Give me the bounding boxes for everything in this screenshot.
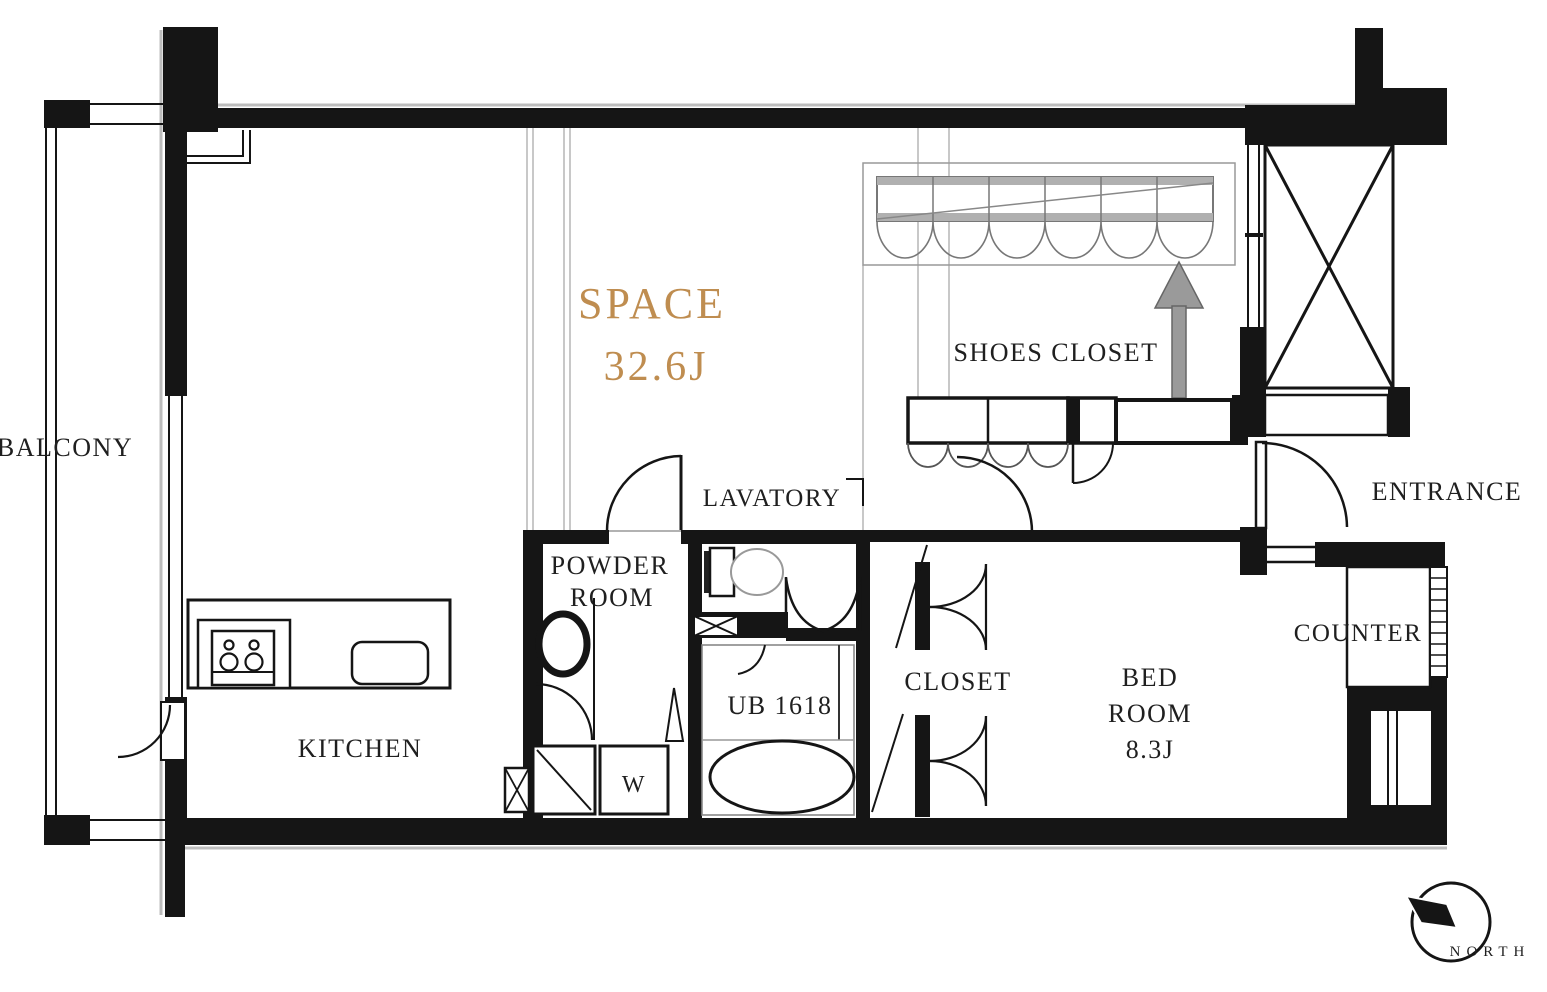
wall-shaft-right-block bbox=[1388, 387, 1410, 437]
balcony-label: BALCONY bbox=[0, 433, 133, 462]
bedroom-east-window bbox=[1370, 710, 1432, 806]
hall-door-swing bbox=[957, 457, 1032, 532]
shaft-bottom-box bbox=[1265, 395, 1388, 435]
shoe-cabinet-3 bbox=[1116, 400, 1232, 443]
floor-plan-drawing: BALCONY ENTRANCE bbox=[0, 0, 1547, 992]
wall-ub-left bbox=[688, 638, 702, 818]
wall-ne-band bbox=[1245, 105, 1385, 145]
wall-closet-left bbox=[856, 530, 870, 818]
space-area-label: 32.6J bbox=[604, 344, 709, 390]
powder-room-label-2: ROOM bbox=[570, 583, 654, 612]
bedroom-label-1: BED bbox=[1122, 663, 1179, 692]
north-label: NORTH bbox=[1450, 944, 1531, 960]
arrow-head bbox=[1155, 262, 1203, 308]
bedroom-label-2: ROOM bbox=[1108, 699, 1192, 728]
space-label: SPACE bbox=[578, 279, 726, 328]
shoes-closet-upper-cabinet bbox=[863, 163, 1235, 265]
shaft-xbox bbox=[1245, 145, 1393, 435]
wall-ne-corner bbox=[1383, 88, 1447, 145]
living-door-swing bbox=[607, 456, 681, 531]
closet-label: CLOSET bbox=[904, 667, 1011, 696]
cabinet-hanging-arcs bbox=[877, 221, 1213, 258]
wall-entry-block bbox=[1240, 527, 1267, 575]
closet-post-lower bbox=[915, 715, 930, 817]
toilet bbox=[704, 548, 783, 596]
toilet-bowl bbox=[731, 549, 783, 595]
lavatory-label: LAVATORY bbox=[703, 485, 841, 512]
unit-bath-label: UB 1618 bbox=[727, 691, 832, 720]
shoes-closet-label: SHOES CLOSET bbox=[953, 338, 1158, 367]
wall-south bbox=[165, 818, 1447, 845]
ub-door-swing bbox=[738, 645, 765, 674]
balcony-block-bottom bbox=[44, 815, 90, 845]
ub-door-leaf bbox=[666, 688, 683, 741]
kitchen-label: KITCHEN bbox=[298, 734, 423, 763]
wall-west-upper bbox=[165, 27, 187, 394]
wall-above-counter bbox=[1315, 542, 1445, 567]
shoes-closet-lower-cabinets bbox=[908, 398, 1232, 483]
powder-door-swing bbox=[536, 684, 592, 740]
bedroom-area-label: 8.3J bbox=[1126, 735, 1175, 764]
entry-direction-arrow bbox=[1155, 262, 1203, 398]
hall-cabinet-door-swing bbox=[1073, 443, 1113, 483]
floor-plan: BALCONY ENTRANCE bbox=[0, 0, 1547, 992]
powder-room-label-1: POWDER bbox=[551, 551, 670, 580]
balcony-block-top bbox=[44, 100, 90, 128]
powder-room-fixtures bbox=[536, 598, 594, 740]
entrance-door-swing bbox=[1262, 443, 1347, 527]
lavatory-bifold-door bbox=[786, 577, 860, 631]
wall-bedroom-top bbox=[868, 530, 1240, 542]
closet-diagonal-2 bbox=[872, 714, 903, 812]
entrance-door-leaf bbox=[1256, 442, 1266, 528]
wall-powder-top-right bbox=[681, 530, 870, 544]
living-door bbox=[607, 455, 681, 531]
west-window bbox=[165, 385, 187, 701]
kitchen-counter bbox=[188, 600, 450, 688]
powder-sink bbox=[539, 614, 587, 674]
balcony-door bbox=[118, 702, 185, 760]
balcony-door-leaf bbox=[161, 702, 185, 760]
counter-label: COUNTER bbox=[1294, 620, 1423, 647]
corner-window-detail bbox=[187, 130, 250, 163]
kitchen-sink bbox=[352, 642, 428, 684]
arrow-shaft bbox=[1172, 306, 1186, 398]
balcony bbox=[44, 100, 165, 845]
lavatory-label-bracket bbox=[846, 479, 863, 506]
wall-west-stub bbox=[165, 845, 185, 917]
washer-label: W bbox=[622, 772, 646, 798]
entrance-label: ENTRANCE bbox=[1372, 477, 1523, 506]
duct-box bbox=[694, 616, 738, 636]
wall-ne-stub bbox=[1355, 28, 1383, 108]
bathtub bbox=[710, 741, 854, 813]
wall-hall-block bbox=[1232, 395, 1248, 445]
